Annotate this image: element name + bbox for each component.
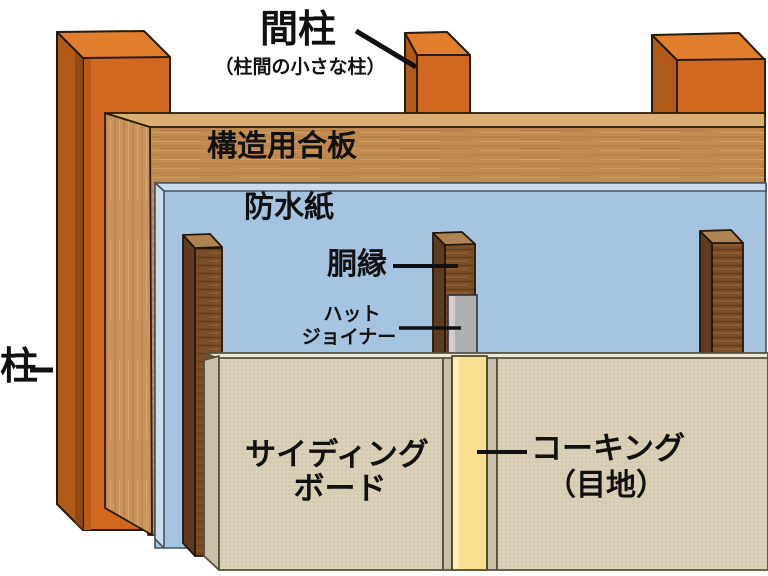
stud-note-label: （柱間の小さな柱） <box>214 58 385 77</box>
stud-left <box>405 32 470 117</box>
plywood-top-face <box>105 113 765 127</box>
furring-right-side-face <box>700 231 712 357</box>
waterproof-side-face <box>155 183 164 548</box>
furring-left-side-face <box>183 235 195 556</box>
furring-strip-label: 胴縁 <box>327 250 387 280</box>
siding-left-panel-edge-bevel <box>443 358 452 570</box>
wall-construction-diagram: 間柱 （柱間の小さな柱） 構造用合板 防水紙 胴縁 ハット ジョイナー 柱 サイ… <box>0 0 768 576</box>
hat-joiner <box>448 295 477 357</box>
furring-middle-side-face <box>433 233 445 357</box>
siding-board-label-line1: サイディング <box>245 439 429 470</box>
caulking-label-line1: コーキング <box>531 433 685 464</box>
siding-right-panel-edge-bevel <box>487 358 497 570</box>
siding-side-face <box>204 356 219 570</box>
stud-left-front-face <box>417 55 470 117</box>
waterproof-paper-label: 防水紙 <box>244 193 334 223</box>
furring-strip-right <box>700 230 743 357</box>
stud-right <box>652 33 765 117</box>
hat-joiner-label-line2: ジョイナー <box>302 328 397 347</box>
waterproof-top-face <box>155 183 766 191</box>
stud-label: 間柱 <box>260 11 336 49</box>
furring-right-front-face <box>712 243 743 357</box>
caulking-label-line2: （目地） <box>546 471 666 501</box>
pillar-label: 柱 <box>0 348 38 386</box>
plywood-side-face <box>105 113 152 535</box>
siding-board-label-line2: ボード <box>294 473 387 504</box>
stud-left-top-face <box>405 32 470 55</box>
structural-plywood-label: 構造用合板 <box>207 132 357 162</box>
hat-joiner-label-line1: ハット <box>323 305 380 324</box>
stud-right-front-face <box>677 59 765 117</box>
